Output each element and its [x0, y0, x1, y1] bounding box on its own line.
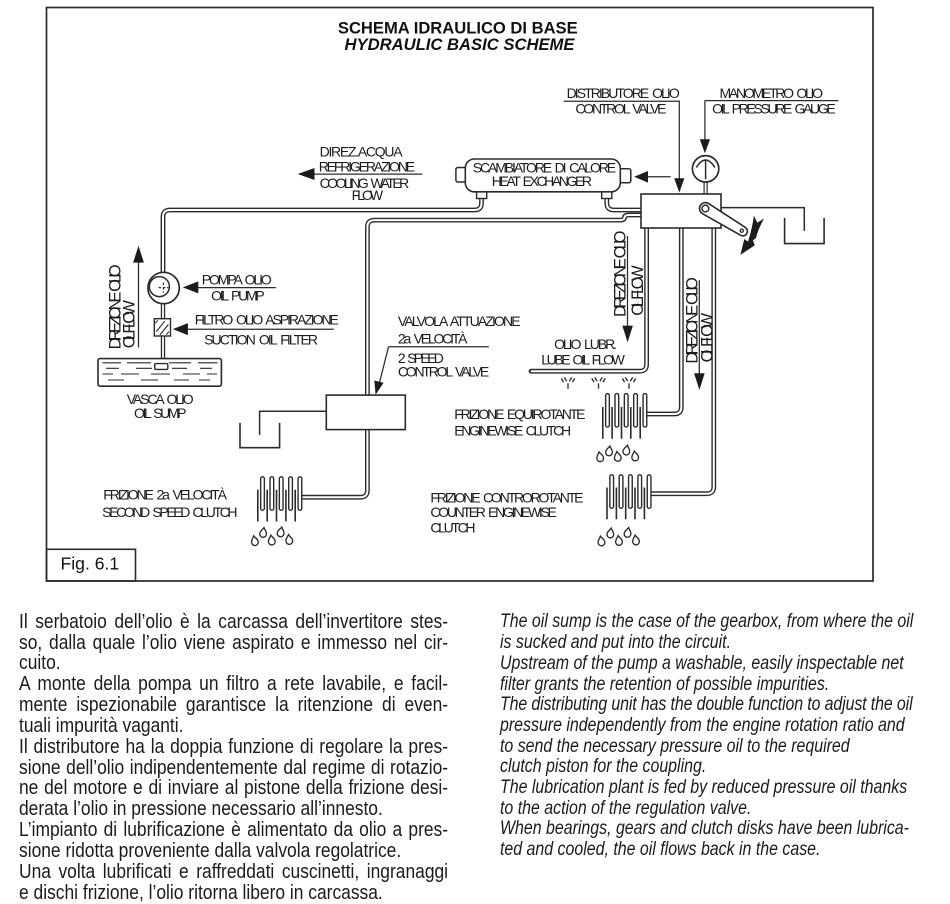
- svg-text:SCHEMA IDRAULICO DI BASE: SCHEMA IDRAULICO DI BASE: [338, 20, 578, 38]
- svg-text:CONTROL VALVE: CONTROL VALVE: [398, 363, 489, 379]
- svg-text:ENGINEWISE CLUTCH: ENGINEWISE CLUTCH: [454, 422, 571, 438]
- svg-text:FLOW: FLOW: [352, 187, 384, 203]
- svg-text:LUBE OIL FLOW: LUBE OIL FLOW: [541, 352, 625, 368]
- svg-text:Fig. 6.1: Fig. 6.1: [61, 554, 120, 574]
- svg-text:FILTRO OLIO ASPIRAZIONE: FILTRO OLIO ASPIRAZIONE: [195, 311, 339, 327]
- svg-text:MANOMETRO OLIO: MANOMETRO OLIO: [720, 85, 824, 101]
- svg-text:CLUTCH: CLUTCH: [430, 520, 475, 536]
- svg-text:FRIZIONE CONTROROTANTE: FRIZIONE CONTROROTANTE: [430, 489, 583, 505]
- svg-text:POMPA OLIO: POMPA OLIO: [202, 271, 272, 287]
- svg-text:DIREZIONE OLIO: DIREZIONE OLIO: [611, 230, 629, 317]
- svg-text:OIL FLOW: OIL FLOW: [121, 300, 139, 349]
- svg-text:OLIO LUBR.: OLIO LUBR.: [554, 336, 617, 352]
- svg-text:COUNTER ENGINEWISE: COUNTER ENGINEWISE: [430, 504, 556, 520]
- svg-text:OIL SUMP: OIL SUMP: [134, 405, 186, 421]
- svg-text:HEAT EXCHANGER: HEAT EXCHANGER: [492, 173, 592, 189]
- svg-text:OIL FLOW: OIL FLOW: [698, 313, 716, 363]
- svg-text:CONTROL VALVE: CONTROL VALVE: [575, 101, 666, 117]
- svg-text:FRIZIONE 2a VELOCITÀ: FRIZIONE 2a VELOCITÀ: [103, 487, 227, 503]
- svg-text:2a VELOCITÀ: 2a VELOCITÀ: [398, 330, 468, 346]
- svg-text:SUCTION OIL FILTER: SUCTION OIL FILTER: [204, 332, 318, 348]
- svg-text:HYDRAULIC BASIC SCHEME: HYDRAULIC BASIC SCHEME: [345, 36, 576, 54]
- svg-text:REFRIGERAZIONE: REFRIGERAZIONE: [319, 158, 415, 174]
- svg-text:FRIZIONE EQUIROTANTE: FRIZIONE EQUIROTANTE: [454, 406, 585, 422]
- svg-text:OIL PUMP: OIL PUMP: [211, 288, 264, 304]
- svg-text:SECOND SPEED CLUTCH: SECOND SPEED CLUTCH: [102, 504, 237, 520]
- svg-text:DISTRIBUTORE OLIO: DISTRIBUTORE OLIO: [567, 85, 680, 101]
- svg-text:VALVOLA ATTUAZIONE: VALVOLA ATTUAZIONE: [398, 313, 520, 329]
- svg-text:OIL FLOW: OIL FLOW: [629, 265, 647, 316]
- svg-text:OIL PRESSURE GAUGE: OIL PRESSURE GAUGE: [712, 100, 835, 116]
- svg-text:DIREZ.ACQUA: DIREZ.ACQUA: [320, 143, 404, 159]
